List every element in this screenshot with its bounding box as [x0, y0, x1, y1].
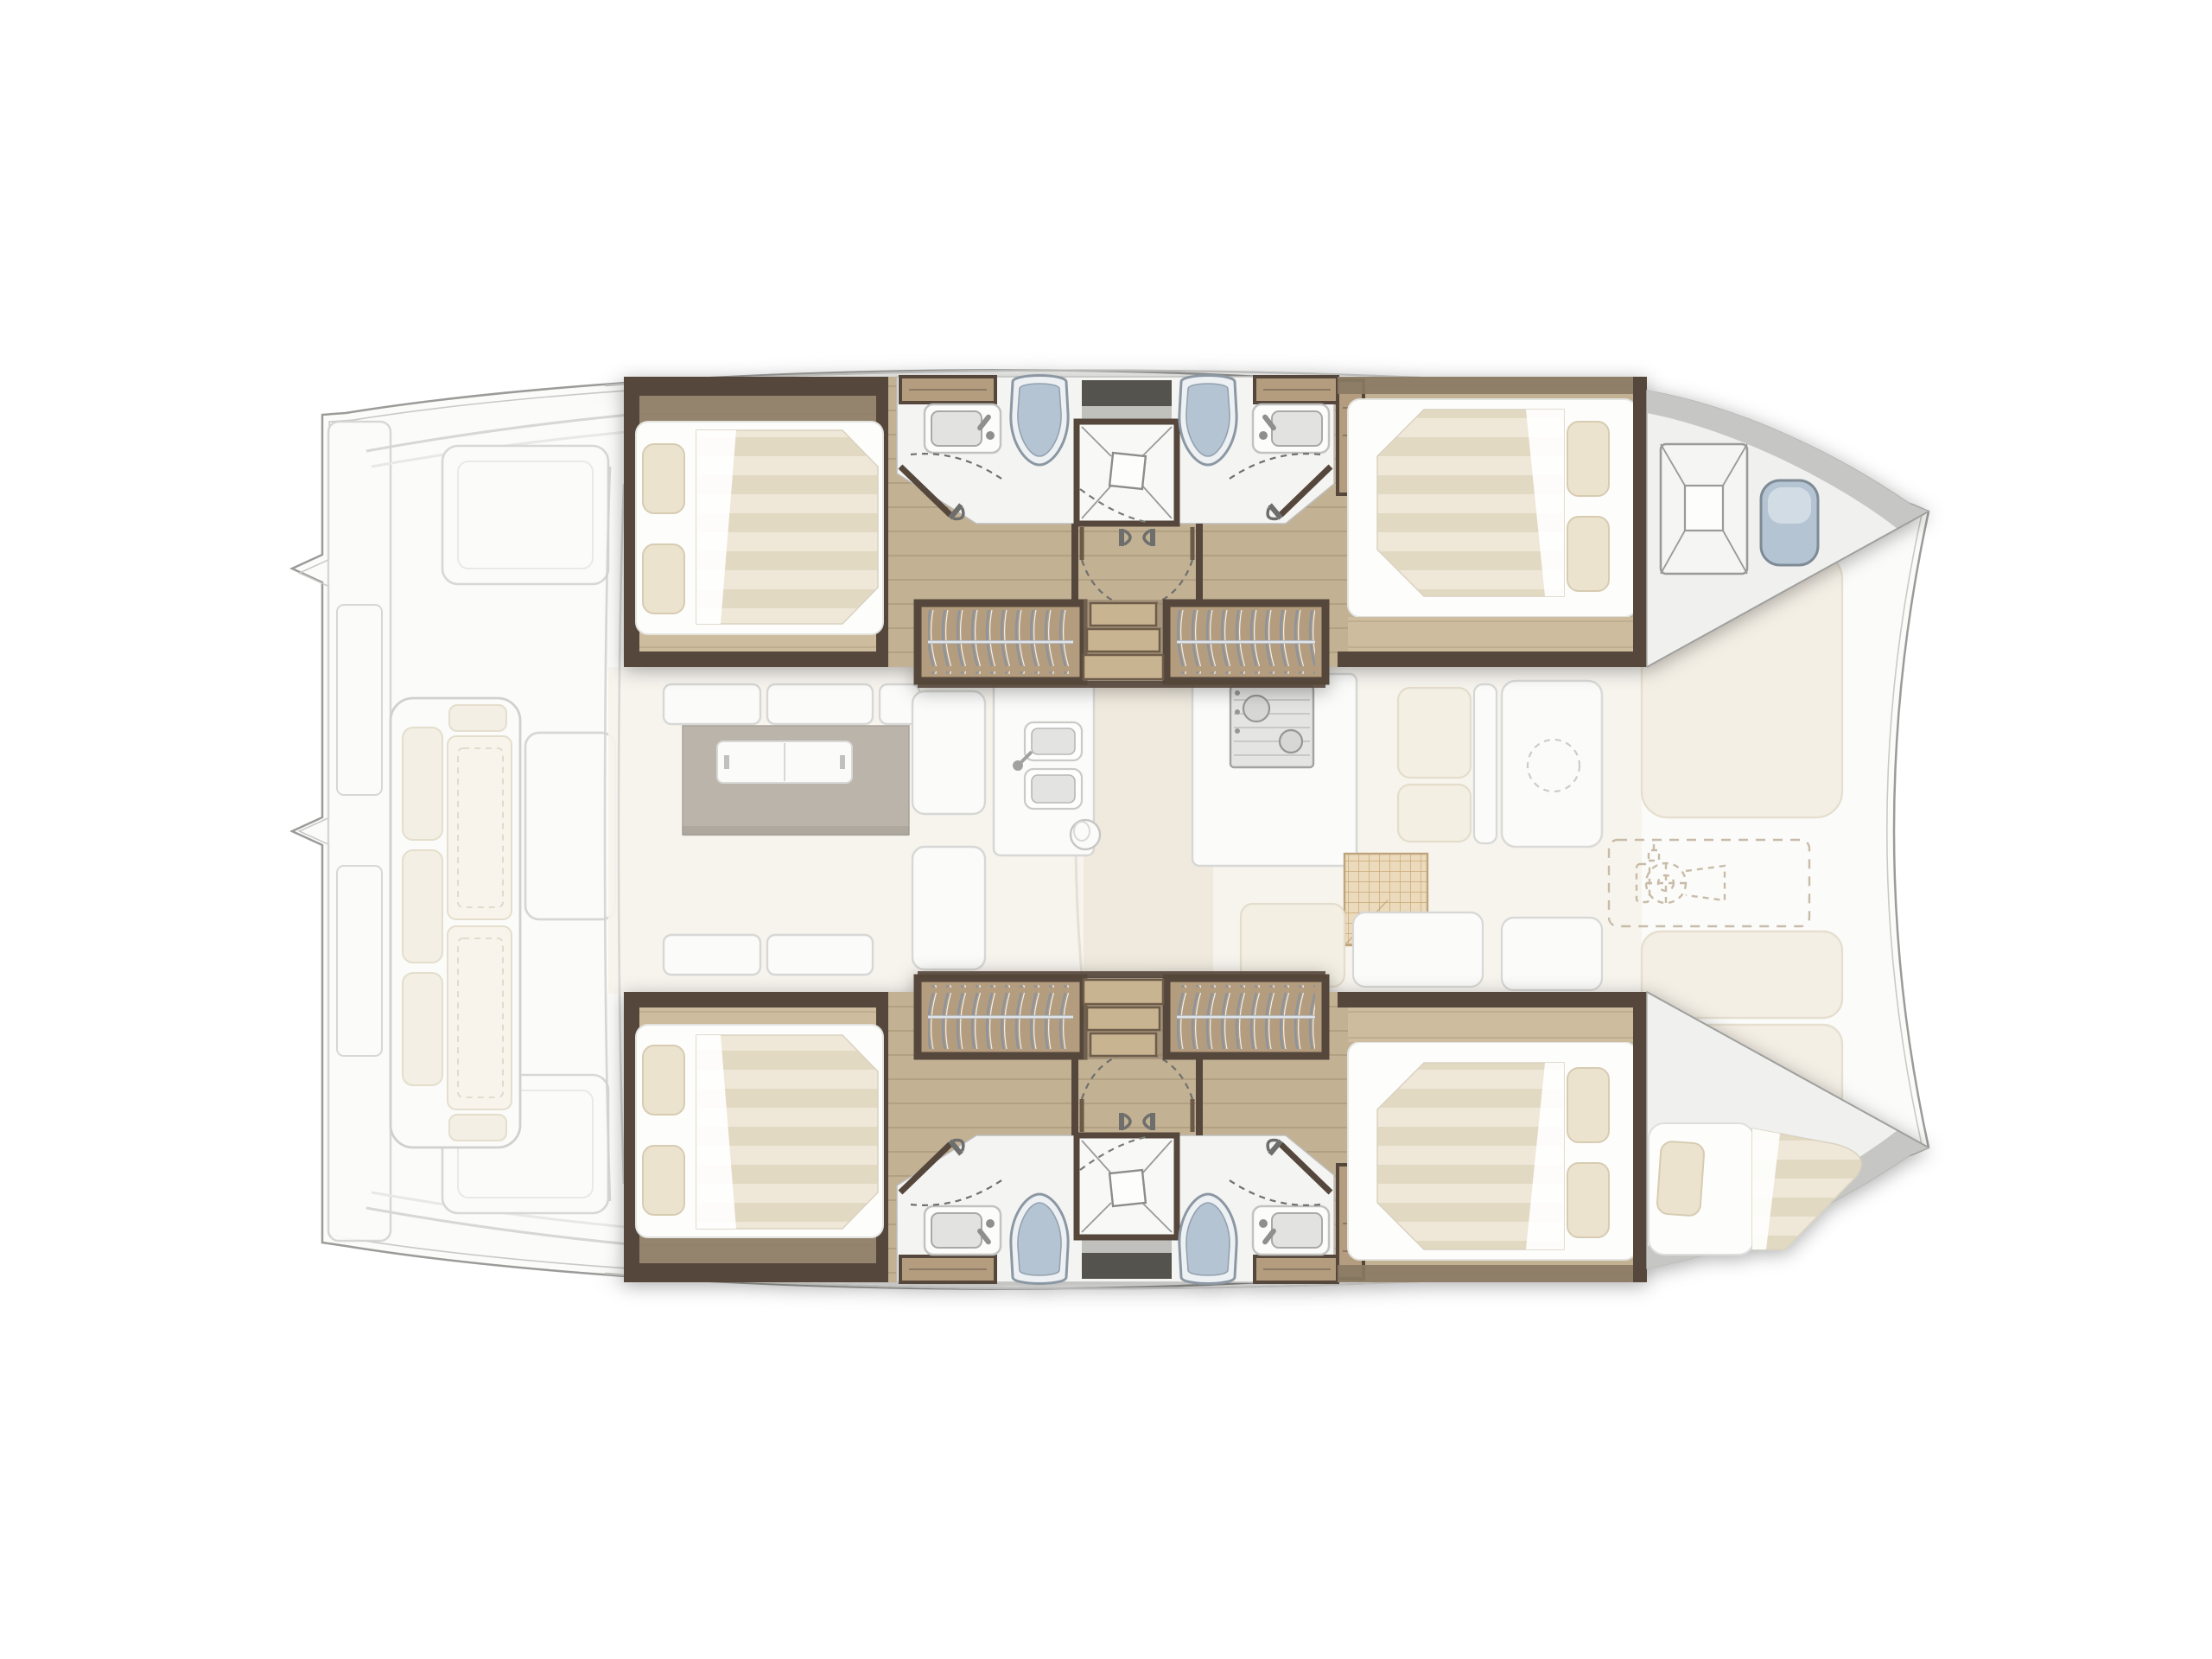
- chart-seat-cushion: [1398, 688, 1471, 778]
- galley-island: [994, 683, 1100, 855]
- forward-seat-panel: [1502, 918, 1602, 990]
- pillow: [1567, 517, 1609, 591]
- pillow: [1567, 422, 1609, 496]
- side-bench: [912, 691, 985, 814]
- shower-skylight: [1082, 380, 1172, 406]
- swim-platform: [328, 422, 391, 1241]
- chart-seat-cushion: [1398, 785, 1471, 842]
- burner: [1243, 696, 1269, 721]
- cockpit-sofa: [391, 698, 520, 1147]
- toilet-forward: [1179, 376, 1236, 466]
- settee-cushion: [664, 684, 760, 724]
- wash-basin-fwd: [1253, 404, 1329, 453]
- aft-cabin: [624, 377, 888, 667]
- sofa-back-pillow: [403, 850, 442, 963]
- hanging-locker-fwd: [1166, 603, 1325, 681]
- bow-seat: [1761, 480, 1818, 565]
- cockpit-bench-port: [442, 446, 608, 584]
- forward-lounge-panel: [1502, 681, 1602, 847]
- forepeak-pillow: [1656, 1141, 1705, 1216]
- step-tread: [1090, 603, 1156, 626]
- pillow: [643, 444, 684, 513]
- sofa-back-pillow: [403, 728, 442, 840]
- pillow: [643, 544, 684, 613]
- wash-basin-aft: [925, 404, 1001, 453]
- settee-cushion: [767, 684, 873, 724]
- head-compartments: [888, 376, 1338, 689]
- galley-counter-forward: [1192, 674, 1357, 866]
- sofa-end-pillow: [449, 705, 506, 731]
- step-tread: [1087, 629, 1160, 652]
- settee-cushion-starboard: [767, 935, 873, 975]
- toilet-aft: [1011, 376, 1068, 466]
- foot-shelf: [1348, 617, 1637, 652]
- sofa-back-pillow: [403, 973, 442, 1085]
- deck-hatch: [1661, 444, 1747, 574]
- stove: [1230, 686, 1313, 767]
- seat-backrest: [1474, 684, 1497, 843]
- cockpit-table: [525, 733, 615, 919]
- forward-cabin: [1338, 377, 1637, 667]
- dinette-seat: [1353, 912, 1483, 987]
- bow-bulkhead: [1633, 377, 1647, 667]
- side-bench-starboard: [912, 847, 985, 969]
- step-tread: [1084, 655, 1163, 679]
- dining-table: [683, 726, 909, 836]
- companionway-steps: [1084, 600, 1163, 683]
- floorplan-svg: Overhead deck and interior layout plan o…: [0, 0, 2212, 1659]
- burner: [1280, 730, 1302, 753]
- shower-drain: [1109, 453, 1146, 489]
- catamaran-floorplan: Overhead deck and interior layout plan o…: [0, 0, 2212, 1659]
- shower: [1077, 380, 1177, 524]
- settee-cushion-starboard: [664, 935, 760, 975]
- sofa-end-pillow: [449, 1115, 506, 1141]
- hanging-locker-aft: [918, 603, 1084, 681]
- forepeak-starboard-berth: [1649, 1123, 1861, 1255]
